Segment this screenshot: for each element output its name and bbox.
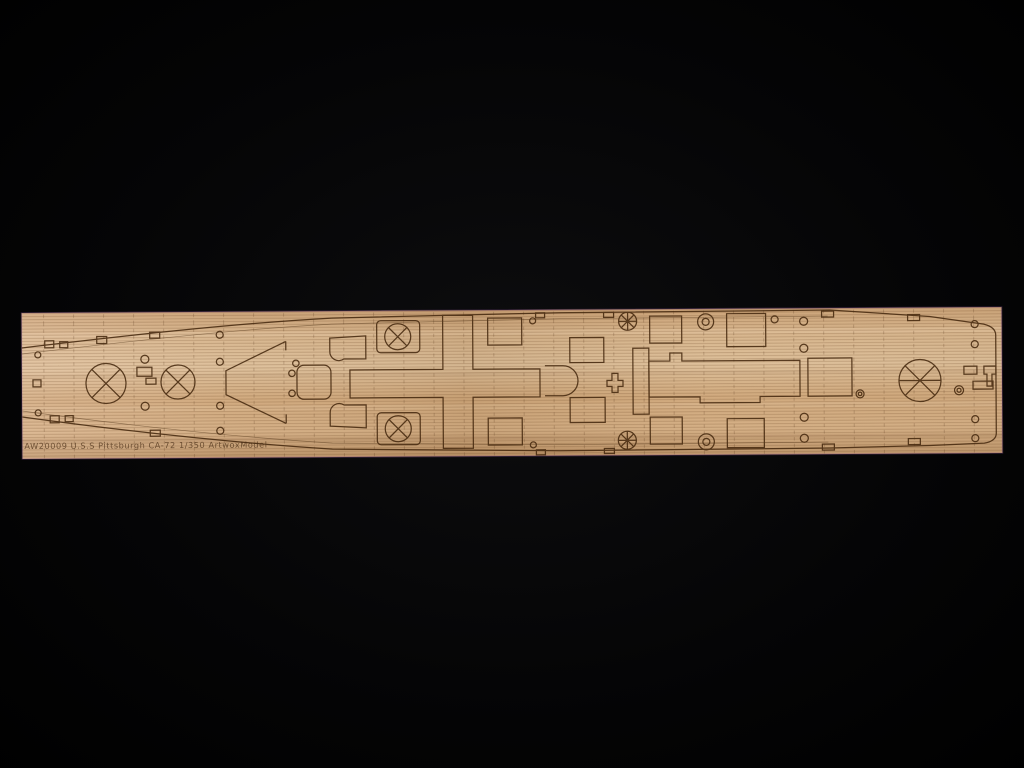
wood-deck-piece: AW20009 U.S.S Pittsburgh CA-72 1/350 Art… — [22, 307, 1003, 459]
pinwheel-vent — [618, 431, 636, 449]
photo-background: AW20009 U.S.S Pittsburgh CA-72 1/350 Art… — [0, 0, 1024, 768]
deck-photo-svg: AW20009 U.S.S Pittsburgh CA-72 1/350 Art… — [0, 0, 1024, 768]
plank-butt-joints — [22, 307, 1003, 459]
pinwheel-vent — [619, 312, 637, 330]
etched-product-label: AW20009 U.S.S Pittsburgh CA-72 1/350 Art… — [24, 439, 267, 450]
